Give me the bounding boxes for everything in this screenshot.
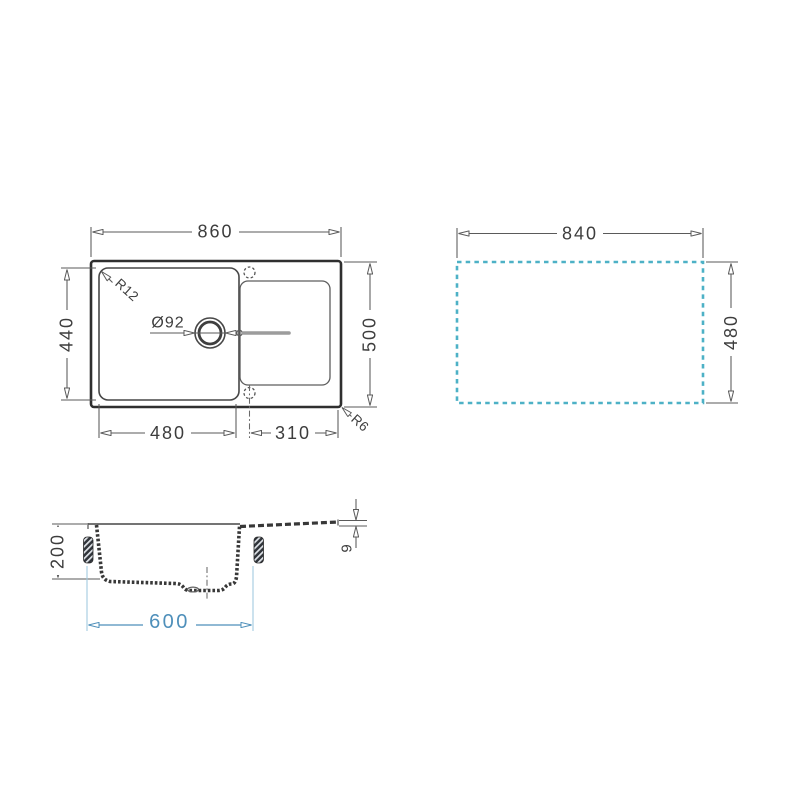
tap-hole-top [244,267,255,278]
cross-section-view: 200 600 9 [48,499,368,633]
drainer-width-label: 310 [275,423,311,443]
drainboard-section [240,522,338,527]
section-depth-label: 200 [48,533,68,569]
bowl-width-label: 480 [150,423,186,443]
sink-dimension-drawing: Ø92 860 500 [0,0,800,800]
drain-diameter-label: Ø92 [151,315,184,332]
sink-top-view: Ø92 860 500 [57,222,380,444]
bowl-radius-leader [102,272,113,283]
outer-corner-radius-label: R6 [348,411,372,434]
technical-drawing-canvas: Ø92 860 500 [0,0,800,800]
overall-depth-label: 500 [360,316,380,352]
cutout-outline [457,262,703,403]
cutout-width-label: 840 [562,224,598,244]
dim-cutout-width: 840 [457,224,703,259]
overall-width-label: 860 [197,222,233,242]
bowl-depth-label: 440 [57,316,77,352]
dim-bowl-width: 480 [99,404,236,443]
dim-overall-depth: 500 [344,262,380,407]
worktop-cutout-view: 840 480 [457,224,741,404]
bowl-section-profile [97,525,240,591]
dim-drainer-width: 310 [250,385,339,443]
dim-overall-width: 860 [91,222,341,258]
mounting-clip-left [84,537,94,563]
mounting-clip-right [254,537,264,563]
dim-cutout-depth: 480 [706,262,741,403]
dim-rim-thickness: 9 [339,499,368,553]
cabinet-width-label: 600 [149,611,190,633]
bowl-corner-radius-label: R12 [112,276,142,305]
dim-cabinet-width: 600 [87,566,253,633]
rim-thickness-label: 9 [339,544,356,552]
outer-radius-leader [342,408,352,417]
cutout-depth-label: 480 [721,314,741,350]
drain-outlet-hole [188,587,199,592]
